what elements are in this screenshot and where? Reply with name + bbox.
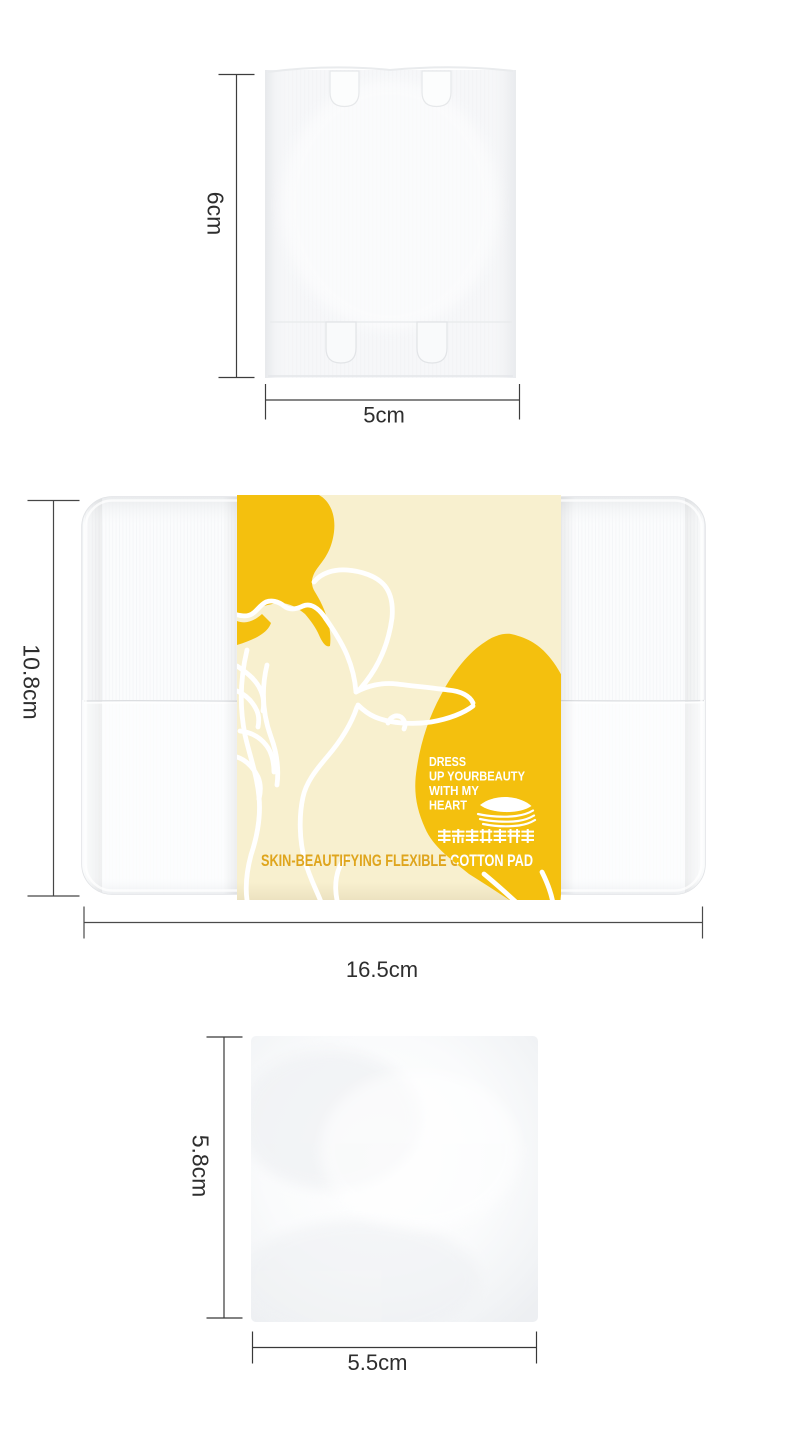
svg-text:HEART: HEART [429,798,467,813]
svg-text:10.8cm: 10.8cm [19,644,45,719]
svg-text:5.8cm: 5.8cm [188,1135,214,1198]
svg-text:16.5cm: 16.5cm [346,957,418,982]
svg-text:WITH MY: WITH MY [429,783,479,798]
svg-text:5cm: 5cm [363,403,405,428]
svg-text:5.5cm: 5.5cm [348,1350,408,1375]
svg-text:DRESS: DRESS [429,754,466,769]
svg-text:UP YOURBEAUTY: UP YOURBEAUTY [429,769,525,784]
svg-text:6cm: 6cm [203,192,229,235]
